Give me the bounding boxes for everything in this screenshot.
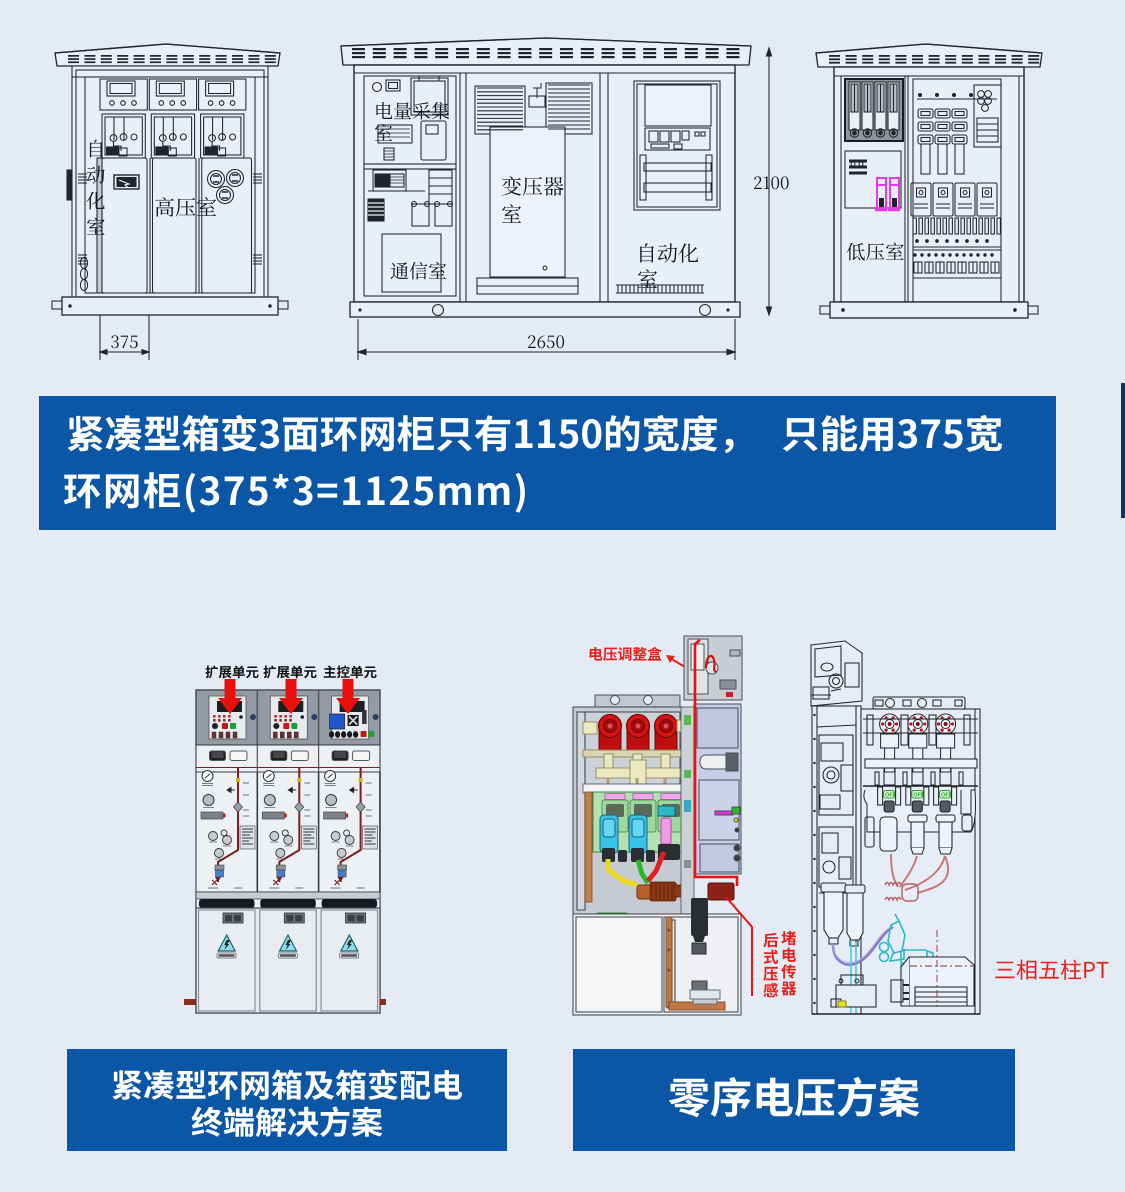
svg-text:OFF: OFF bbox=[913, 793, 925, 799]
svg-text:OFF: OFF bbox=[885, 793, 897, 799]
svg-text:OFF: OFF bbox=[941, 793, 953, 799]
